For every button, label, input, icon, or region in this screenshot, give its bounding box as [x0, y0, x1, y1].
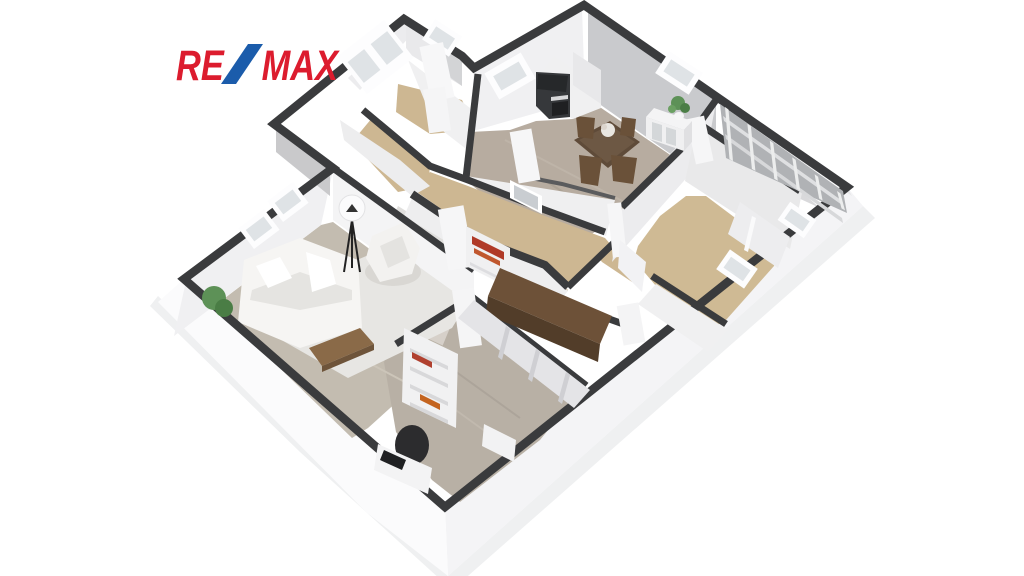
- svg-text:RE: RE: [176, 42, 225, 89]
- svg-text:MAX: MAX: [262, 42, 340, 89]
